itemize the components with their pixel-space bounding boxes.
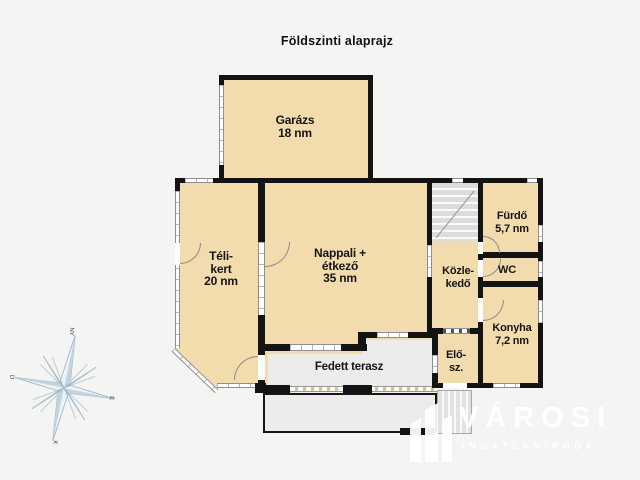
- compass-label-bottom: K: [51, 440, 57, 444]
- room-area: 20 nm: [181, 275, 261, 288]
- window: [185, 178, 213, 183]
- room-label-wc: WC: [487, 264, 527, 277]
- wall: [175, 178, 543, 183]
- room-name: sz.: [437, 362, 475, 375]
- room-name: kedő: [428, 278, 488, 291]
- compass-label-top: NY: [68, 327, 74, 336]
- room-name: Elő-: [437, 349, 475, 362]
- wall: [483, 281, 543, 287]
- wall: [175, 183, 180, 191]
- window: [493, 383, 520, 388]
- wall: [219, 75, 224, 85]
- compass-label-left: D: [8, 375, 14, 380]
- door-opening: [258, 355, 265, 380]
- room-label-telikert: Téli- kert 20 nm: [181, 250, 261, 288]
- room-label-fedett-terasz: Fedett terasz: [289, 361, 409, 374]
- wall: [368, 75, 373, 183]
- open-terrace-area: [263, 393, 437, 433]
- railing-pier: [263, 385, 290, 393]
- window: [527, 178, 537, 183]
- room-label-elosz: Elő- sz.: [437, 349, 475, 374]
- entry-door-opening: [443, 383, 467, 388]
- threshold: [443, 328, 470, 334]
- room-label-nappali: Nappali + étkező 35 nm: [280, 247, 400, 285]
- room-area: 5,7 nm: [472, 223, 552, 236]
- window: [538, 261, 543, 277]
- room-area: 35 nm: [280, 272, 400, 285]
- room-name: Garázs: [245, 114, 345, 127]
- wall: [219, 165, 224, 183]
- room-name: Konyha: [472, 322, 552, 335]
- room-name: Közle-: [428, 265, 488, 278]
- glazed-wall: [175, 191, 180, 348]
- railing-pier: [343, 385, 372, 393]
- compass-label-right: É: [108, 396, 115, 400]
- room-label-garazs: Garázs 18 nm: [245, 114, 345, 139]
- window: [377, 332, 408, 338]
- room-name: Nappali +: [280, 247, 400, 260]
- terrace-edge-wall: [400, 428, 435, 435]
- garage-door: [219, 85, 224, 165]
- room-name: Fedett terasz: [289, 361, 409, 374]
- room-name: WC: [487, 264, 527, 277]
- room-area: 18 nm: [245, 127, 345, 140]
- window: [452, 178, 463, 183]
- room-name: Fürdő: [472, 210, 552, 223]
- exterior-stairs: [437, 390, 472, 434]
- wall: [358, 332, 366, 351]
- room-name: Téli-: [181, 250, 261, 263]
- wall: [219, 75, 373, 80]
- window: [290, 344, 341, 351]
- room-area: 7,2 nm: [472, 335, 552, 348]
- compass-rose: NY É K D: [8, 326, 120, 448]
- room-label-konyha: Konyha 7,2 nm: [472, 322, 552, 347]
- window: [538, 300, 543, 323]
- room-label-furdo: Fürdő 5,7 nm: [472, 210, 552, 235]
- room-label-kozlekedo: Közle- kedő: [428, 265, 488, 290]
